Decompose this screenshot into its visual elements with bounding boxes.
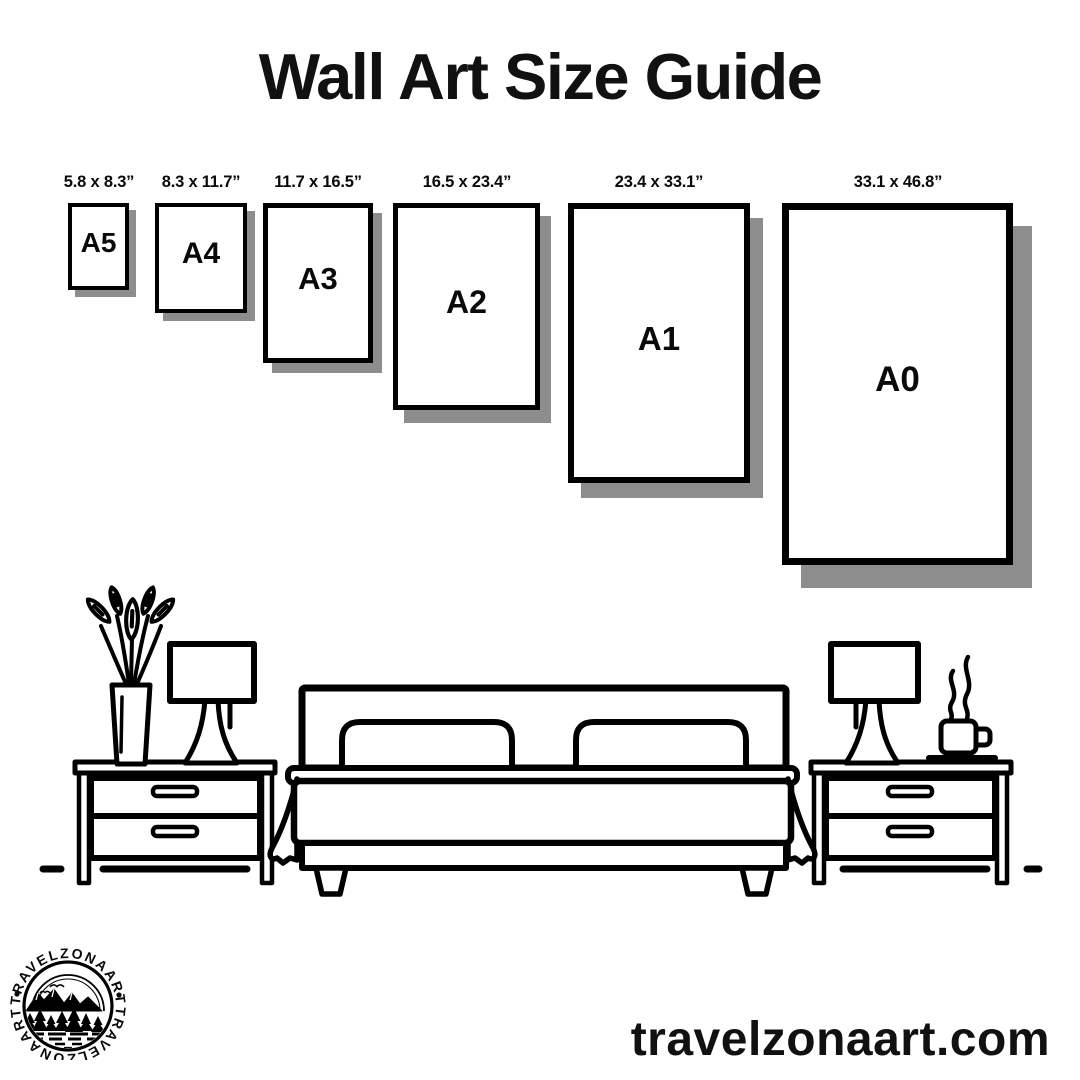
logo-dot — [14, 991, 19, 996]
poster-code-a2: A2 — [446, 284, 487, 321]
poster-code-a0: A0 — [875, 360, 920, 400]
table-lamp-left — [170, 644, 254, 763]
steam — [950, 671, 954, 719]
size-label-a0: 33.1 x 46.8” — [854, 173, 942, 192]
size-label-a2: 16.5 x 23.4” — [423, 173, 511, 192]
website-url: travelzonaart.com — [631, 1012, 1050, 1067]
poster-code-a3: A3 — [298, 261, 338, 297]
drawer-handle — [153, 787, 197, 796]
poster-a1: A1 — [568, 203, 750, 483]
nightstand-left — [75, 762, 275, 883]
leaf — [125, 599, 138, 640]
poster-a2: A2 — [393, 203, 540, 410]
lamp-shade — [831, 644, 918, 701]
bed-foot — [742, 868, 772, 894]
drawer-handle — [153, 827, 197, 836]
poster-a5: A5 — [68, 203, 129, 290]
size-label-a1: 23.4 x 33.1” — [615, 173, 703, 192]
poster-a3: A3 — [263, 203, 373, 363]
drawer-handle — [888, 787, 932, 796]
size-label-a4: 8.3 x 11.7” — [162, 173, 241, 192]
mattress — [294, 781, 791, 843]
pillow-left — [342, 722, 512, 770]
size-label-a5: 5.8 x 8.3” — [64, 173, 134, 192]
page-title: Wall Art Size Guide — [0, 44, 1080, 109]
plant-vase — [85, 586, 177, 764]
logo-dot — [116, 992, 121, 997]
poster-code-a1: A1 — [638, 320, 680, 358]
bird-icon — [50, 985, 64, 987]
nightstand-right — [811, 762, 1011, 883]
poster-a0: A0 — [782, 203, 1013, 565]
poster-a4: A4 — [155, 203, 247, 313]
coffee-cup — [929, 657, 995, 758]
drawer-handle — [888, 827, 932, 836]
bed-foot — [316, 868, 346, 894]
bed-base — [302, 843, 786, 868]
table-lamp-right — [831, 644, 918, 763]
bedroom-illustration — [0, 580, 1080, 910]
steam — [965, 657, 969, 719]
double-bed — [270, 688, 815, 894]
wall-art-size-guide-infographic: Wall Art Size Guide 5.8 x 8.3” 8.3 x 11.… — [0, 0, 1080, 1080]
leaf — [108, 586, 124, 615]
size-label-a3: 11.7 x 16.5” — [274, 173, 362, 192]
pillow-right — [576, 722, 746, 770]
lamp-shade — [170, 644, 254, 701]
leaf — [85, 596, 113, 625]
brand-logo: TRAVELZONAART TRAVELZONAART — [6, 936, 130, 1060]
poster-code-a4: A4 — [182, 237, 220, 271]
poster-code-a5: A5 — [81, 227, 117, 259]
